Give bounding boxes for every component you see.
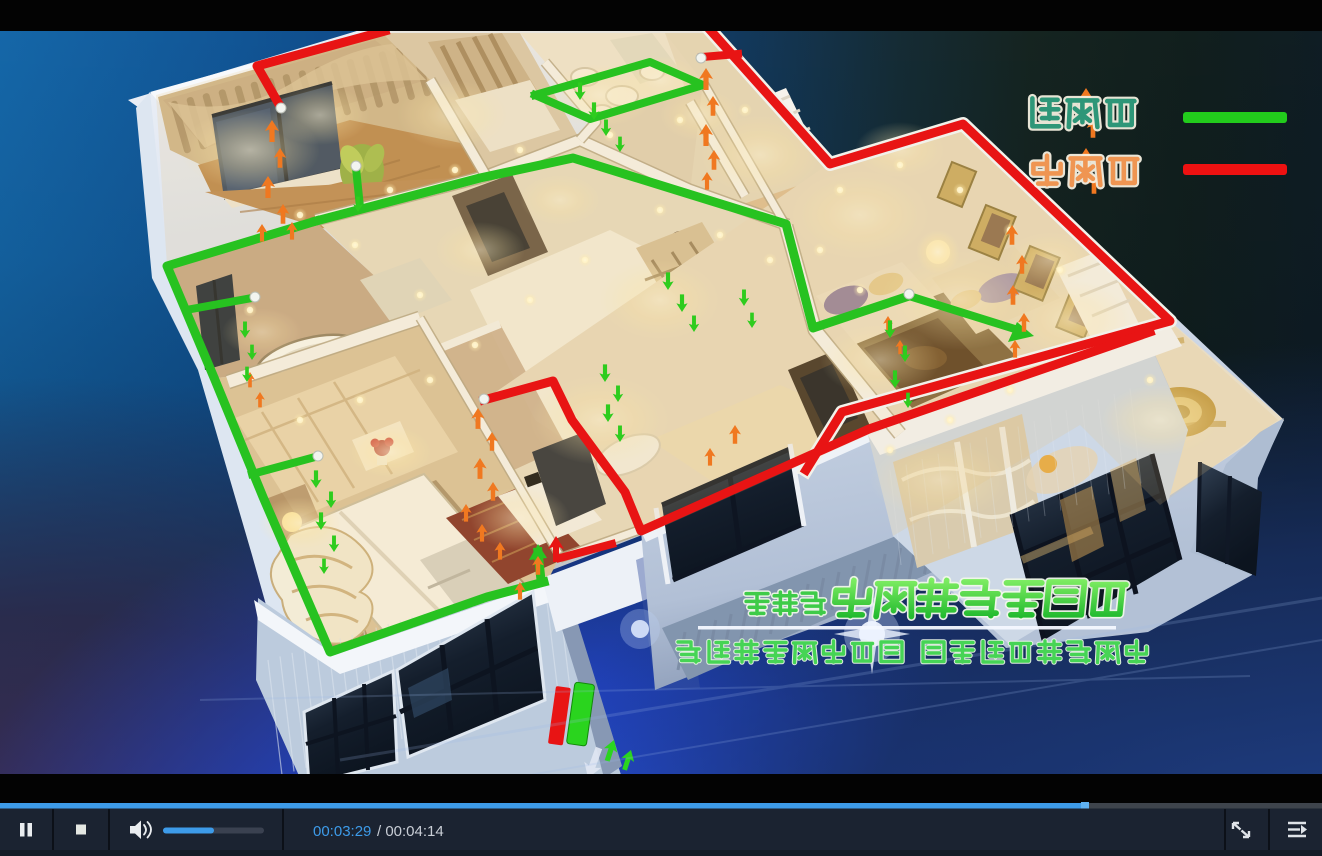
svg-text:/ 00:04:14: / 00:04:14 bbox=[377, 823, 444, 840]
svg-text:00:03:29: 00:03:29 bbox=[313, 823, 371, 840]
